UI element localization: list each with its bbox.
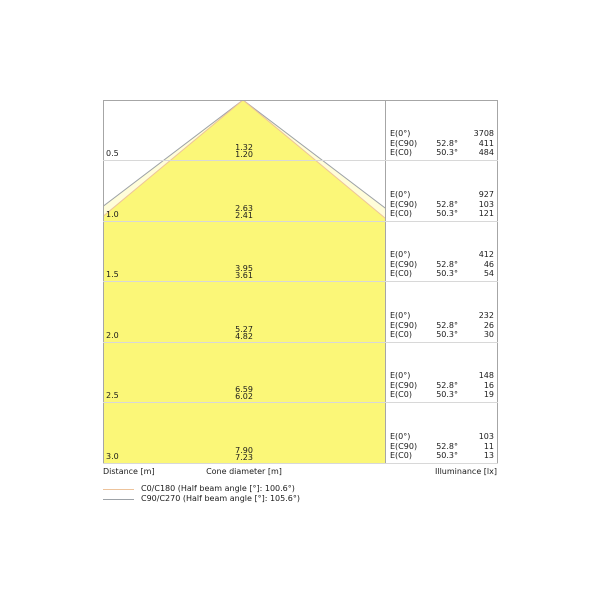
c90-c270-line-swatch [103, 499, 134, 500]
e0-label: E(0°) [390, 250, 428, 260]
cone-diameter-c0: 3.61 [103, 272, 385, 279]
e0-label: E(0°) [390, 432, 428, 442]
c90-angle: 52.8° [428, 139, 458, 149]
table-bottom-border [103, 463, 498, 464]
c90-angle: 52.8° [428, 381, 458, 391]
cone-diameter-c0: 6.02 [103, 393, 385, 400]
c0-c180-legend-label: C0/C180 (Half beam angle [°]: 100.6°) [141, 484, 295, 494]
ec0-value: 19 [458, 390, 494, 400]
row-line-1.0m [103, 221, 498, 222]
c0-angle: 50.3° [428, 330, 458, 340]
cone-diameter-values: 2.63 2.41 [103, 205, 385, 219]
cone-diameter-values: 7.90 7.23 [103, 447, 385, 461]
c0-angle: 50.3° [428, 148, 458, 158]
ec0-label: E(C0) [390, 451, 428, 461]
e0-value: 927 [458, 190, 494, 200]
ec0-value: 121 [458, 209, 494, 219]
axis-labels: Distance [m] Cone diameter [m] Illuminan… [103, 466, 498, 477]
c90-angle: 52.8° [428, 442, 458, 452]
c0-angle: 50.3° [428, 209, 458, 219]
ec0-label: E(C0) [390, 148, 428, 158]
ec90-label: E(C90) [390, 442, 428, 452]
legend-item-c0-c180: C0/C180 (Half beam angle [°]: 100.6°) [103, 484, 453, 494]
ec90-value: 411 [458, 139, 494, 149]
c90-c270-legend-label: C90/C270 (Half beam angle [°]: 105.6°) [141, 494, 300, 504]
illuminance-block: E(0°)103 E(C90)52.8°11 E(C0)50.3°13 [390, 432, 494, 462]
cone-diameter-values: 5.27 4.82 [103, 326, 385, 340]
luminous-cone-diagram: 0.5 1.0 1.5 2.0 2.5 3.0 1.32 1.20 2.63 2… [0, 0, 600, 600]
e0-value: 3708 [458, 129, 494, 139]
ec0-value: 30 [458, 330, 494, 340]
cone-diameter-c0: 7.23 [103, 454, 385, 461]
e0-label: E(0°) [390, 190, 428, 200]
illuminance-block: E(0°)927 E(C90)52.8°103 E(C0)50.3°121 [390, 190, 494, 220]
c90-angle: 52.8° [428, 260, 458, 270]
c0-angle: 50.3° [428, 451, 458, 461]
row-line-2.0m [103, 342, 498, 343]
ec90-label: E(C90) [390, 139, 428, 149]
illuminance-block: E(0°)3708 E(C90)52.8°411 E(C0)50.3°484 [390, 129, 494, 159]
ec0-label: E(C0) [390, 209, 428, 219]
illuminance-axis-label: Illuminance [lx] [435, 466, 497, 477]
cone-diameter-axis-label: Cone diameter [m] [103, 466, 385, 477]
ec0-label: E(C0) [390, 330, 428, 340]
c0-angle: 50.3° [428, 390, 458, 400]
ec0-label: E(C0) [390, 390, 428, 400]
e0-value: 103 [458, 432, 494, 442]
cone-diameter-c0: 2.41 [103, 212, 385, 219]
c90-angle: 52.8° [428, 321, 458, 331]
ec90-value: 11 [458, 442, 494, 452]
ec0-value: 54 [458, 269, 494, 279]
e0-value: 232 [458, 311, 494, 321]
ec90-value: 46 [458, 260, 494, 270]
e0-label: E(0°) [390, 129, 428, 139]
e0-value: 148 [458, 371, 494, 381]
ec90-label: E(C90) [390, 260, 428, 270]
c90-angle: 52.8° [428, 200, 458, 210]
legend-item-c90-c270: C90/C270 (Half beam angle [°]: 105.6°) [103, 494, 453, 504]
illuminance-block: E(0°)232 E(C90)52.8°26 E(C0)50.3°30 [390, 311, 494, 341]
ec90-value: 16 [458, 381, 494, 391]
cone-diameter-c0: 1.20 [103, 151, 385, 158]
ec0-label: E(C0) [390, 269, 428, 279]
ec90-label: E(C90) [390, 200, 428, 210]
ec90-value: 103 [458, 200, 494, 210]
cone-diameter-values: 6.59 6.02 [103, 386, 385, 400]
ec0-value: 13 [458, 451, 494, 461]
ec90-value: 26 [458, 321, 494, 331]
cone-diameter-values: 3.95 3.61 [103, 265, 385, 279]
c0-angle: 50.3° [428, 269, 458, 279]
ec90-label: E(C90) [390, 381, 428, 391]
e0-label: E(0°) [390, 371, 428, 381]
illuminance-block: E(0°)148 E(C90)52.8°16 E(C0)50.3°19 [390, 371, 494, 401]
table-top-border [103, 100, 498, 101]
illuminance-block: E(0°)412 E(C90)52.8°46 E(C0)50.3°54 [390, 250, 494, 280]
ec90-label: E(C90) [390, 321, 428, 331]
e0-label: E(0°) [390, 311, 428, 321]
e0-value: 412 [458, 250, 494, 260]
c0-c180-line-swatch [103, 489, 134, 490]
cone-diameter-c0: 4.82 [103, 333, 385, 340]
ec0-value: 484 [458, 148, 494, 158]
row-line-0.5m [103, 160, 498, 161]
row-line-2.5m [103, 402, 498, 403]
cone-diameter-values: 1.32 1.20 [103, 144, 385, 158]
row-line-1.5m [103, 281, 498, 282]
